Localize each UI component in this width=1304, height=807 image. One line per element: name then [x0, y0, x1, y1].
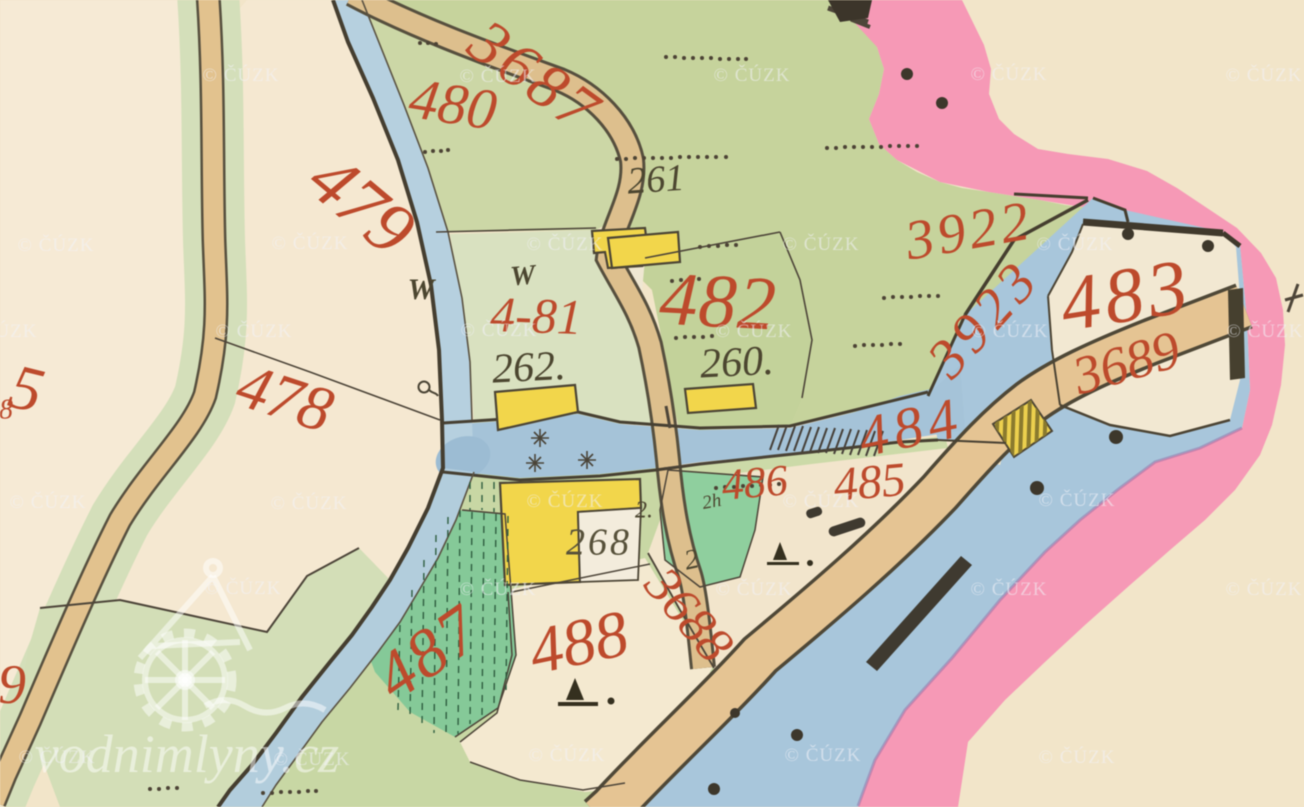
- svg-text:© ČÚZK: © ČÚZK: [205, 577, 282, 599]
- svg-text:© ČÚZK: © ČÚZK: [10, 491, 87, 513]
- svg-text:© ČÚZK: © ČÚZK: [971, 63, 1048, 85]
- svg-text:© ČÚZK: © ČÚZK: [1226, 578, 1303, 600]
- svg-text:261: 261: [626, 157, 686, 203]
- svg-text:© ČÚZK: © ČÚZK: [716, 320, 793, 342]
- svg-text:© ČÚZK: © ČÚZK: [527, 233, 604, 255]
- svg-text:© ČÚZK: © ČÚZK: [972, 320, 1049, 342]
- svg-text:© ČÚZK: © ČÚZK: [785, 744, 862, 766]
- svg-text:© ČÚZK: © ČÚZK: [783, 233, 860, 255]
- svg-text:© ČÚZK: © ČÚZK: [203, 64, 280, 86]
- svg-text:© ČÚZK: © ČÚZK: [527, 490, 604, 512]
- svg-text:268: 268: [566, 522, 632, 564]
- svg-text:© ČÚZK: © ČÚZK: [18, 234, 95, 256]
- svg-text:© ČÚZK: © ČÚZK: [216, 320, 293, 342]
- svg-text:W: W: [408, 273, 437, 306]
- svg-text:© ČÚZK: © ČÚZK: [1039, 489, 1116, 511]
- svg-text:260.: 260.: [699, 338, 775, 388]
- svg-text:262.: 262.: [491, 343, 567, 393]
- svg-text:© ČÚZK: © ČÚZK: [274, 748, 351, 770]
- svg-text:© ČÚZK: © ČÚZK: [1227, 320, 1304, 342]
- svg-text:8: 8: [0, 394, 13, 425]
- svg-text:© ČÚZK: © ČÚZK: [19, 746, 96, 768]
- svg-text:© ČÚZK: © ČÚZK: [529, 744, 606, 766]
- svg-text:2.: 2.: [635, 498, 653, 524]
- svg-text:© ČÚZK: © ČÚZK: [716, 578, 793, 600]
- svg-text:© ČÚZK: © ČÚZK: [714, 64, 791, 86]
- svg-text:486: 486: [720, 455, 790, 510]
- svg-text:© ČÚZK: © ČÚZK: [783, 490, 860, 512]
- svg-text:2h: 2h: [701, 490, 723, 514]
- svg-text:© ČÚZK: © ČÚZK: [1039, 746, 1116, 768]
- svg-text:© ČÚZK: © ČÚZK: [460, 65, 537, 87]
- svg-text:© ČÚZK: © ČÚZK: [272, 232, 349, 254]
- svg-text:© ČÚZK: © ČÚZK: [271, 492, 348, 514]
- svg-text:© ČÚZK: © ČÚZK: [460, 578, 537, 600]
- svg-text:© ČÚZK: © ČÚZK: [1037, 233, 1114, 255]
- svg-text:W: W: [509, 259, 539, 292]
- svg-text:© ČÚZK: © ČÚZK: [971, 578, 1048, 600]
- svg-text:© ČÚZK: © ČÚZK: [1226, 64, 1303, 86]
- svg-text:© ČÚZK: © ČÚZK: [0, 320, 37, 342]
- svg-text:9: 9: [0, 654, 26, 716]
- svg-text:© ČÚZK: © ČÚZK: [461, 319, 538, 341]
